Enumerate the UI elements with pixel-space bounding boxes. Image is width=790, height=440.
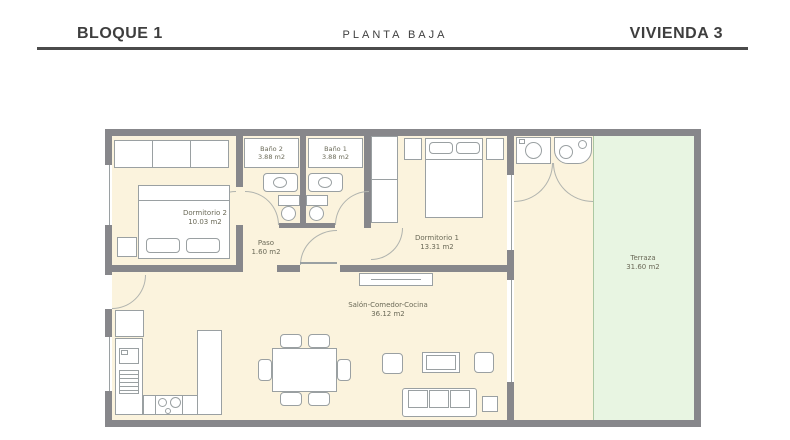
label-salon: Salón-Comedor-Cocina 36.12 m2: [333, 301, 443, 320]
coffee-table-inner: [426, 355, 456, 370]
wall-east-seg2: [507, 250, 514, 280]
dormitorio2-name: Dormitorio 2: [160, 209, 250, 218]
toilet-bano1-bowl: [309, 206, 324, 221]
side-table-left: [382, 353, 403, 374]
dining-table: [272, 348, 337, 392]
label-dormitorio2: Dormitorio 2 10.03 m2: [160, 209, 250, 228]
wall-east-seg3: [507, 382, 514, 420]
sofa-cushion-3: [450, 390, 470, 408]
bano1-area: 3.88 m2: [322, 153, 349, 161]
chair-top-left: [280, 334, 302, 348]
bano2-name: Baño 2: [260, 145, 283, 153]
unit-title: VIVIENDA 3: [630, 25, 723, 43]
stove-burner-3: [165, 408, 171, 414]
living-door-leaf: [300, 262, 337, 264]
wall-bath2-bottom: [279, 223, 300, 228]
tv-sideboard-line: [371, 279, 421, 280]
fridge: [115, 310, 144, 337]
sofa-cushion-1: [408, 390, 428, 408]
toilet-bano2-tank: [278, 195, 300, 206]
washing-machine-drum: [525, 142, 542, 159]
terraza-name: Terraza: [598, 254, 688, 263]
toilet-bano1-tank: [306, 195, 328, 206]
toilet-bano2-bowl: [281, 206, 296, 221]
dormitorio2-area: 10.03 m2: [160, 218, 250, 227]
pillow-dorm2-left: [146, 238, 180, 253]
label-paso: Paso 1.60 m2: [241, 239, 291, 258]
sink-bano1-basin: [318, 177, 332, 188]
chair-bottom-right: [308, 392, 330, 406]
water-heater-dial-small: [578, 140, 587, 149]
dormitorio1-area: 13.31 m2: [392, 243, 482, 252]
chair-bottom-left: [280, 392, 302, 406]
wall-right: [694, 129, 701, 427]
washing-machine-panel: [519, 139, 525, 144]
closet-dorm2-divider1: [152, 141, 153, 167]
kitchen-drainer: [119, 370, 139, 394]
wall-bath1-bottom: [306, 223, 335, 228]
header-divider: [37, 47, 748, 50]
window-living-terrace: [507, 280, 514, 382]
nightstand-dorm1-left: [404, 138, 422, 160]
window-dormitorio1: [507, 175, 514, 250]
closet-dorm2: [114, 140, 229, 168]
block-title: BLOQUE 1: [77, 25, 163, 43]
label-terraza: Terraza 31.60 m2: [598, 254, 688, 273]
shower-bano1: Baño 1 3.88 m2: [308, 138, 363, 168]
salon-area: 36.12 m2: [333, 310, 443, 319]
wall-bath-divider: [300, 136, 306, 228]
shower-bano2: Baño 2 3.88 m2: [244, 138, 299, 168]
chair-right: [337, 359, 351, 381]
bed-dorm2-sheet-line: [139, 200, 229, 201]
chair-left: [258, 359, 272, 381]
closet-dorm1-divider: [372, 179, 397, 180]
label-dormitorio1: Dormitorio 1 13.31 m2: [392, 234, 482, 253]
bed-dorm1-sheet-line: [426, 159, 482, 160]
closet-dorm2-divider2: [190, 141, 191, 167]
paso-area: 1.60 m2: [241, 248, 291, 257]
bano2-area: 3.88 m2: [258, 153, 285, 161]
window-dormitorio2: [105, 165, 112, 225]
terrace-floor: [593, 136, 694, 420]
water-heater-dial-large: [559, 145, 573, 159]
pillow-dorm1-right: [456, 142, 480, 154]
sofa-side-table: [482, 396, 498, 412]
bano1-name: Baño 1: [324, 145, 347, 153]
nightstand-dorm2: [117, 237, 137, 257]
sink-bano2-basin: [273, 177, 287, 188]
plan-title: PLANTA BAJA: [343, 29, 448, 41]
sofa-cushion-2: [429, 390, 449, 408]
wall-top: [105, 129, 701, 136]
entry-door-opening: [105, 275, 112, 309]
wall-bottom: [105, 420, 701, 427]
kitchen-island: [197, 330, 222, 415]
nightstand-dorm1-right: [486, 138, 504, 160]
wall-east-seg1: [507, 136, 514, 175]
wall-paso-living-left: [277, 265, 300, 272]
window-kitchen: [105, 337, 112, 391]
dormitorio1-name: Dormitorio 1: [392, 234, 482, 243]
salon-name: Salón-Comedor-Cocina: [333, 301, 443, 310]
stove-burner-1: [158, 398, 167, 407]
kitchen-sink-tap: [121, 350, 128, 355]
wall-dorm2-bottom: [112, 265, 243, 272]
pillow-dorm1-left: [429, 142, 453, 154]
stove-burner-2: [170, 397, 181, 408]
wall-dorm2-upper: [236, 136, 243, 187]
terraza-area: 31.60 m2: [598, 263, 688, 272]
floorplan: Baño 2 3.88 m2 Baño 1 3.88 m2: [105, 129, 701, 427]
wall-living-top: [340, 265, 507, 272]
pillow-dorm2-right: [186, 238, 220, 253]
paso-name: Paso: [241, 239, 291, 248]
chair-top-right: [308, 334, 330, 348]
side-table-right: [474, 352, 494, 373]
